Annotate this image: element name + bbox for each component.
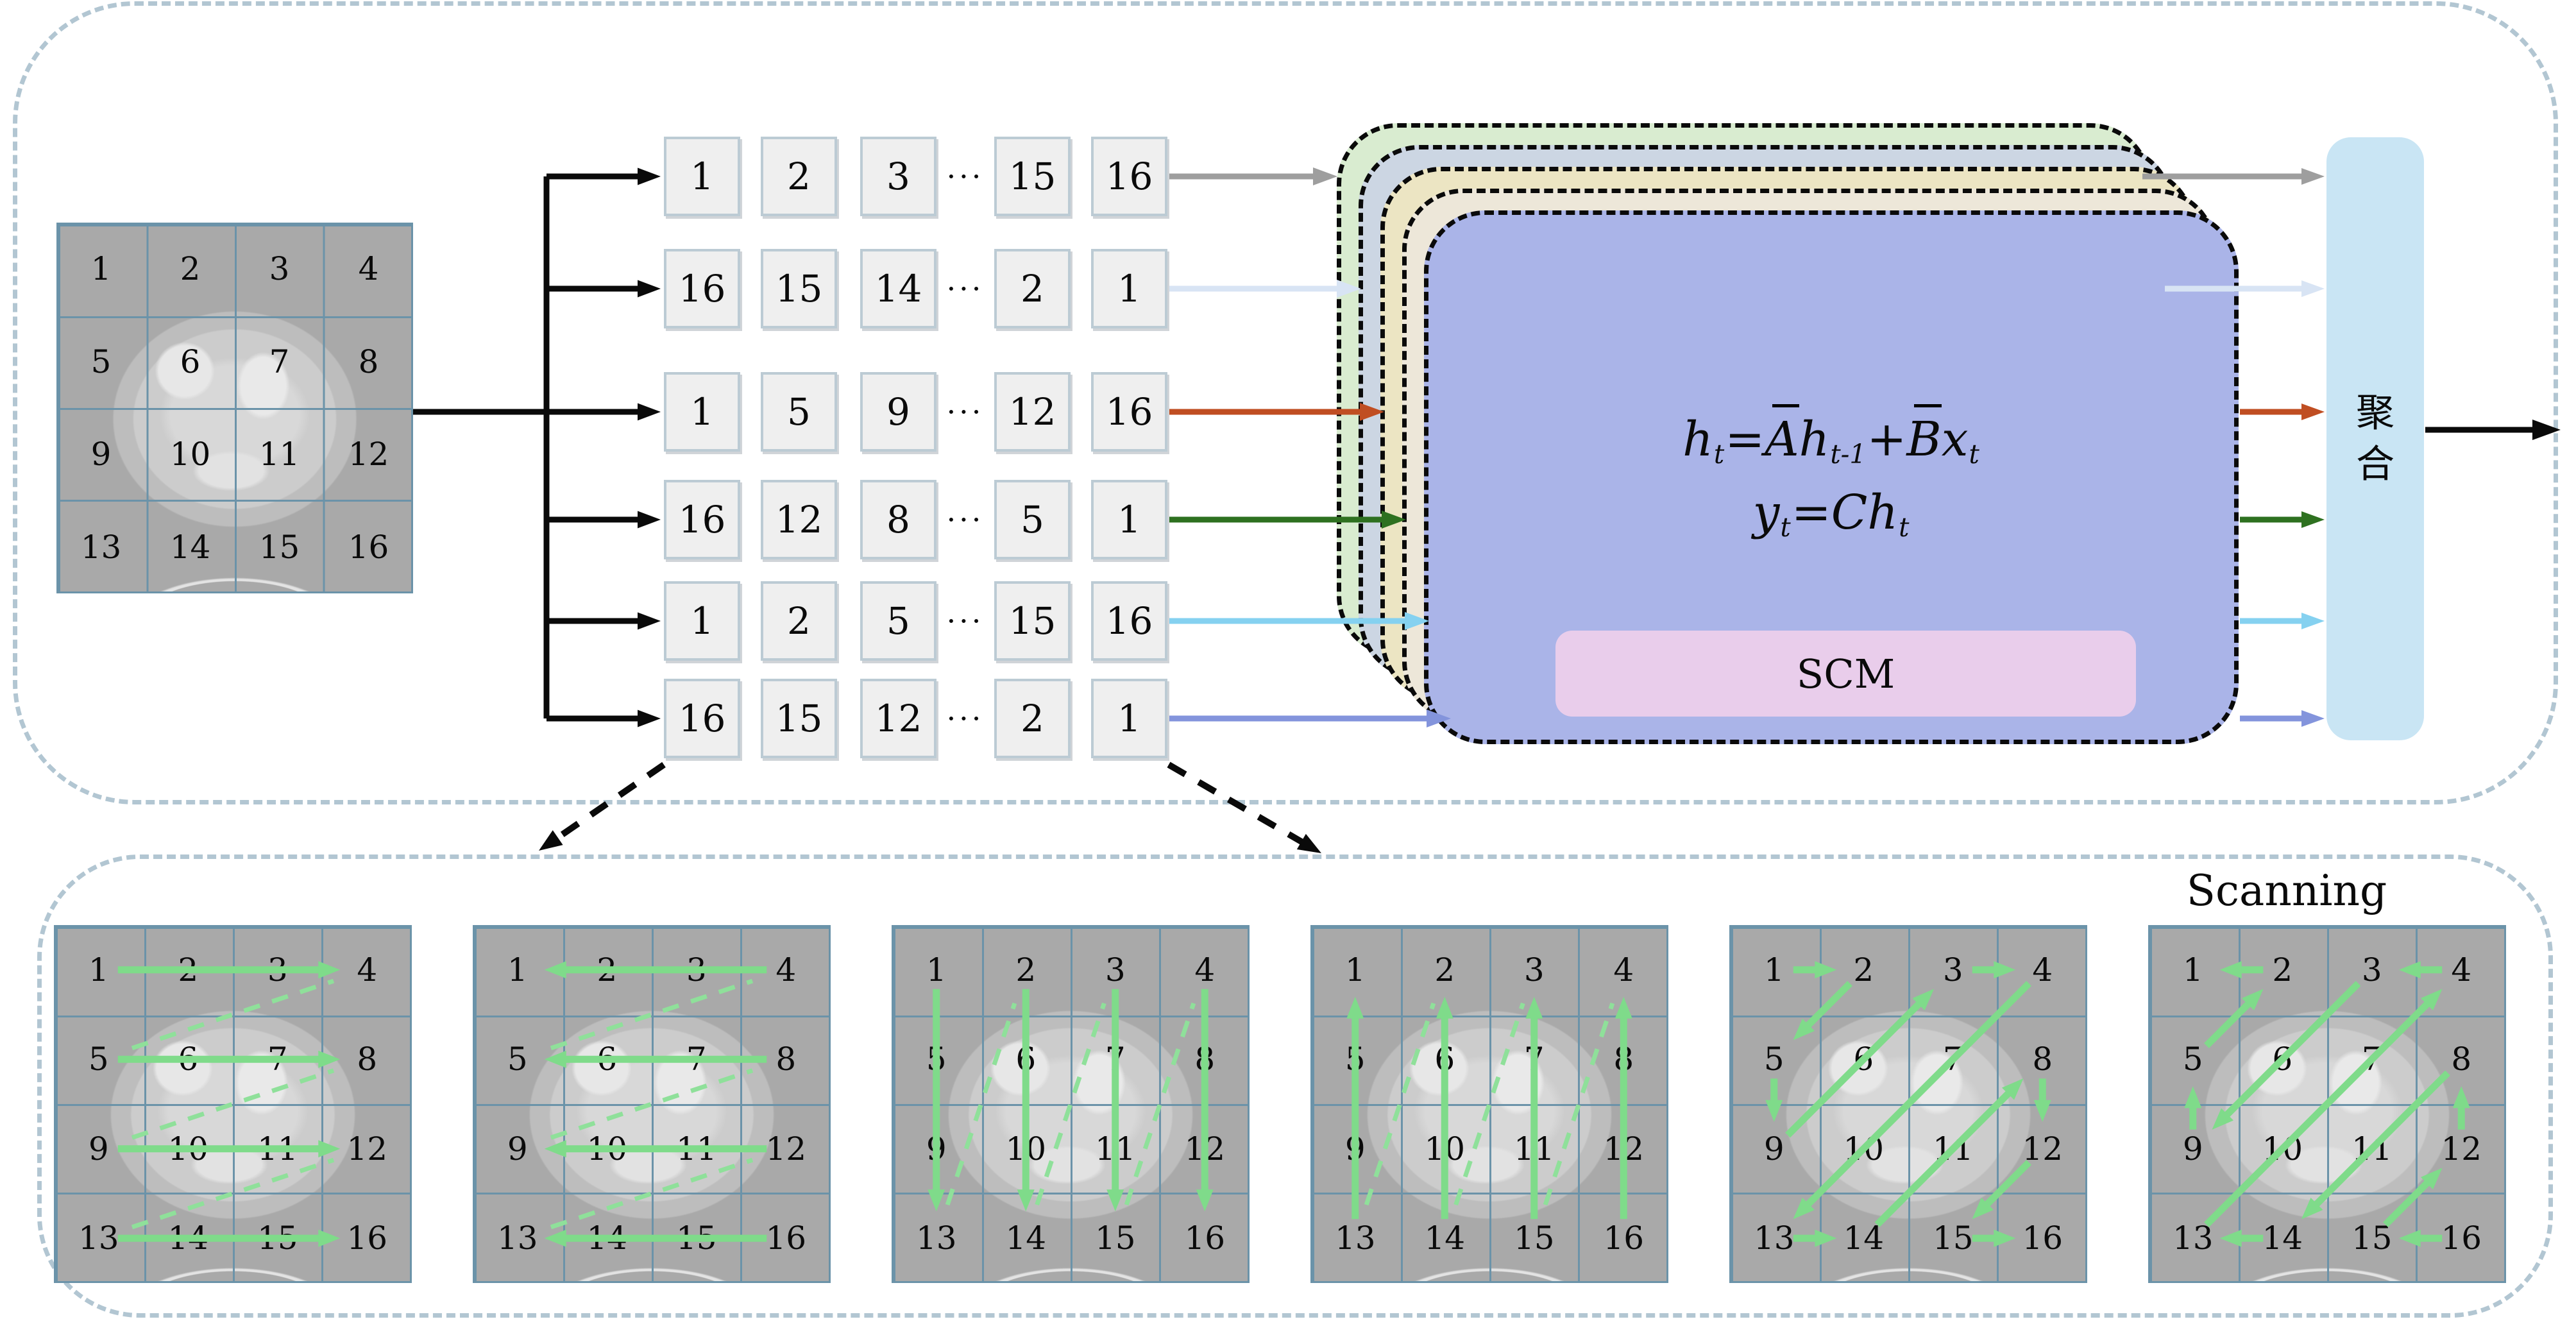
equation-token: = — [1725, 412, 1765, 467]
scanning-label: Scanning — [2136, 866, 2437, 915]
grid-cell-label: 6 — [1400, 1015, 1490, 1105]
sequence-dots: ··· — [944, 480, 987, 559]
grid-cell-label: 8 — [1160, 1015, 1250, 1105]
grid-cell-label: 2 — [563, 925, 652, 1015]
sequence-dots: ··· — [944, 249, 987, 328]
grid-cell-label: 16 — [1160, 1194, 1250, 1284]
grid-cell-label: 9 — [1310, 1104, 1400, 1194]
sequence-box: 1 — [664, 137, 740, 216]
grid-cell-label: 6 — [144, 1015, 233, 1105]
grid-cell-label: 6 — [146, 316, 235, 409]
sequence-box: 16 — [664, 679, 740, 758]
sequence-box: 2 — [761, 137, 837, 216]
grid-cell-label: 16 — [2417, 1194, 2507, 1284]
sequence-box: 1 — [1091, 249, 1167, 328]
grid-cell-label: 1 — [1310, 925, 1400, 1015]
grid-cell-label: 12 — [323, 1104, 412, 1194]
grid-cell-label: 14 — [144, 1194, 233, 1284]
scan-grid-6: 12345678910111213141516 — [2148, 925, 2506, 1283]
grid-cell-label: 14 — [981, 1194, 1071, 1284]
grid-cell-label: 16 — [324, 501, 413, 594]
sequence-box: 15 — [994, 581, 1071, 661]
sequence-box: 2 — [994, 249, 1071, 328]
scan-grid-4: 12345678910111213141516 — [1310, 925, 1668, 1283]
grid-cell-label: 3 — [235, 223, 324, 316]
equation-token: t — [1714, 439, 1724, 470]
grid-cell-label: 4 — [1998, 925, 2088, 1015]
grid-cell-label: 4 — [1160, 925, 1250, 1015]
equation-token: A — [1765, 403, 1799, 476]
ct-cell-numbers: 12345678910111213141516 — [54, 925, 412, 1283]
grid-cell-label: 16 — [1579, 1194, 1669, 1284]
diagram-stage: ht=Aht-1+Bxt yt=Cht SCM 聚合 1234567891011… — [0, 0, 2576, 1326]
grid-cell-label: 14 — [2238, 1194, 2328, 1284]
sequence-box: 12 — [994, 372, 1071, 452]
sequence-box: 5 — [761, 372, 837, 452]
arrow-head — [539, 830, 563, 851]
sequence-box: 16 — [1091, 137, 1167, 216]
grid-cell-label: 6 — [563, 1015, 652, 1105]
grid-cell-label: 12 — [741, 1104, 831, 1194]
grid-cell-label: 15 — [1489, 1194, 1579, 1284]
grid-cell-label: 14 — [1819, 1194, 1909, 1284]
grid-cell-label: 10 — [1400, 1104, 1490, 1194]
grid-cell-label: 12 — [1160, 1104, 1250, 1194]
scan-grid-2: 12345678910111213141516 — [473, 925, 831, 1283]
sequence-box: 15 — [761, 679, 837, 758]
grid-cell-label: 5 — [892, 1015, 981, 1105]
grid-cell-label: 2 — [2238, 925, 2328, 1015]
sequence-box: 1 — [1091, 679, 1167, 758]
sequence-box: 3 — [860, 137, 936, 216]
sequence-box: 1 — [664, 372, 740, 452]
equation-line-2: yt=Cht — [1495, 476, 2168, 549]
grid-cell-label: 16 — [741, 1194, 831, 1284]
scan-grid-3: 12345678910111213141516 — [892, 925, 1250, 1283]
scan-grid-1: 12345678910111213141516 — [54, 925, 412, 1283]
equation-token: t — [1969, 439, 1979, 470]
sequence-dots: ··· — [944, 372, 987, 452]
grid-cell-label: 9 — [54, 1104, 144, 1194]
grid-cell-label: 12 — [2417, 1104, 2507, 1194]
sequence-box: 12 — [860, 679, 936, 758]
grid-cell-label: 11 — [233, 1104, 323, 1194]
scan-grid-5: 12345678910111213141516 — [1729, 925, 2087, 1283]
grid-cell-label: 1 — [892, 925, 981, 1015]
grid-cell-label: 1 — [2148, 925, 2238, 1015]
equation-token: = — [1792, 485, 1831, 540]
grid-cell-label: 11 — [1908, 1104, 1998, 1194]
equation-token: t — [1899, 512, 1909, 543]
grid-cell-label: 10 — [144, 1104, 233, 1194]
grid-cell-label: 15 — [2327, 1194, 2417, 1284]
equation-token: x — [1942, 412, 1969, 467]
arrow-head — [1297, 834, 1321, 853]
grid-cell-label: 7 — [1908, 1015, 1998, 1105]
grid-cell-label: 2 — [144, 925, 233, 1015]
grid-cell-label: 8 — [2417, 1015, 2507, 1105]
grid-cell-label: 13 — [54, 1194, 144, 1284]
grid-cell-label: 2 — [146, 223, 235, 316]
scm-label: SCM — [1797, 650, 1895, 697]
grid-cell-label: 8 — [1579, 1015, 1669, 1105]
sequence-box: 2 — [761, 581, 837, 661]
grid-cell-label: 2 — [981, 925, 1071, 1015]
sequence-box: 2 — [994, 679, 1071, 758]
grid-cell-label: 1 — [56, 223, 146, 316]
grid-cell-label: 7 — [652, 1015, 741, 1105]
sequence-box: 15 — [761, 249, 837, 328]
equation-token: h — [1682, 412, 1713, 467]
sequence-box: 16 — [1091, 372, 1167, 452]
grid-cell-label: 3 — [1071, 925, 1160, 1015]
grid-cell-label: 14 — [1400, 1194, 1490, 1284]
grid-cell-label: 10 — [2238, 1104, 2328, 1194]
grid-cell-label: 9 — [2148, 1104, 2238, 1194]
grid-cell-label: 14 — [563, 1194, 652, 1284]
sequence-box: 15 — [994, 137, 1071, 216]
grid-cell-label: 4 — [324, 223, 413, 316]
grid-cell-label: 13 — [2148, 1194, 2238, 1284]
grid-cell-label: 3 — [1489, 925, 1579, 1015]
grid-cell-label: 5 — [1310, 1015, 1400, 1105]
sequence-dots: ··· — [944, 581, 987, 661]
sequence-box: 1 — [664, 581, 740, 661]
sequence-box: 16 — [1091, 581, 1167, 661]
grid-cell-label: 13 — [1310, 1194, 1400, 1284]
sequence-dots: ··· — [944, 137, 987, 216]
grid-cell-label: 7 — [1489, 1015, 1579, 1105]
sequence-box: 16 — [664, 480, 740, 559]
sequence-box: 8 — [860, 480, 936, 559]
equation-line-1: ht=Aht-1+Bxt — [1495, 403, 2168, 476]
grid-cell-label: 6 — [1819, 1015, 1909, 1105]
equation-token: B — [1906, 403, 1941, 476]
equation-token: h — [1799, 412, 1830, 467]
grid-cell-label: 16 — [1998, 1194, 2088, 1284]
grid-cell-label: 11 — [1071, 1104, 1160, 1194]
grid-cell-label: 5 — [56, 316, 146, 409]
grid-cell-label: 4 — [1579, 925, 1669, 1015]
sequence-box: 14 — [860, 249, 936, 328]
grid-cell-label: 5 — [2148, 1015, 2238, 1105]
sequence-box: 16 — [664, 249, 740, 328]
grid-cell-label: 9 — [473, 1104, 563, 1194]
aggregate-label-char: 合 — [2356, 439, 2394, 490]
grid-cell-label: 10 — [563, 1104, 652, 1194]
ct-cell-numbers: 12345678910111213141516 — [473, 925, 831, 1283]
grid-cell-label: 13 — [1729, 1194, 1819, 1284]
grid-cell-label: 9 — [892, 1104, 981, 1194]
grid-cell-label: 1 — [54, 925, 144, 1015]
grid-cell-label: 12 — [324, 408, 413, 501]
equation-token: h — [1867, 485, 1898, 540]
grid-cell-label: 15 — [235, 501, 324, 594]
equation-token: t — [1780, 512, 1790, 543]
grid-cell-label: 7 — [1071, 1015, 1160, 1105]
grid-cell-label: 8 — [324, 316, 413, 409]
ct-cell-numbers: 12345678910111213141516 — [1729, 925, 2087, 1283]
grid-cell-label: 13 — [892, 1194, 981, 1284]
grid-cell-label: 2 — [1819, 925, 1909, 1015]
grid-cell-label: 4 — [323, 925, 412, 1015]
sequence-box: 9 — [860, 372, 936, 452]
grid-cell-label: 8 — [323, 1015, 412, 1105]
grid-cell-label: 13 — [473, 1194, 563, 1284]
aggregate-label-char: 聚 — [2356, 387, 2394, 439]
ct-cell-numbers: 12345678910111213141516 — [892, 925, 1250, 1283]
grid-cell-label: 3 — [1908, 925, 1998, 1015]
grid-cell-label: 15 — [1908, 1194, 1998, 1284]
grid-cell-label: 11 — [2327, 1104, 2417, 1194]
grid-cell-label: 15 — [1071, 1194, 1160, 1284]
grid-cell-label: 7 — [235, 316, 324, 409]
grid-cell-label: 3 — [233, 925, 323, 1015]
grid-cell-label: 5 — [54, 1015, 144, 1105]
grid-cell-label: 5 — [1729, 1015, 1819, 1105]
grid-cell-label: 10 — [1819, 1104, 1909, 1194]
grid-cell-label: 16 — [323, 1194, 412, 1284]
equation-token: t-1 — [1830, 439, 1866, 470]
sequence-dots: ··· — [944, 679, 987, 758]
aggregate-box: 聚合 — [2326, 137, 2424, 740]
sequence-box: 5 — [860, 581, 936, 661]
equation-token: + — [1867, 412, 1906, 467]
grid-cell-label: 2 — [1400, 925, 1490, 1015]
grid-cell-label: 5 — [473, 1015, 563, 1105]
equation-token: C — [1831, 485, 1868, 540]
grid-cell-label: 15 — [233, 1194, 323, 1284]
source-image-grid: 12345678910111213141516 — [56, 223, 413, 593]
grid-cell-label: 7 — [233, 1015, 323, 1105]
grid-cell-label: 1 — [473, 925, 563, 1015]
equation-token: y — [1753, 485, 1780, 540]
grid-cell-label: 12 — [1998, 1104, 2088, 1194]
grid-cell-label: 7 — [2327, 1015, 2417, 1105]
scm-box: SCM — [1555, 631, 2136, 717]
grid-cell-label: 1 — [1729, 925, 1819, 1015]
grid-cell-label: 10 — [981, 1104, 1071, 1194]
grid-cell-label: 15 — [652, 1194, 741, 1284]
sequence-box: 12 — [761, 480, 837, 559]
grid-cell-label: 3 — [652, 925, 741, 1015]
grid-cell-label: 11 — [235, 408, 324, 501]
ct-cell-numbers: 12345678910111213141516 — [56, 223, 413, 593]
grid-cell-label: 9 — [1729, 1104, 1819, 1194]
grid-cell-label: 10 — [146, 408, 235, 501]
grid-cell-label: 13 — [56, 501, 146, 594]
grid-cell-label: 9 — [56, 408, 146, 501]
sequence-box: 5 — [994, 480, 1071, 559]
grid-cell-label: 6 — [981, 1015, 1071, 1105]
ct-cell-numbers: 12345678910111213141516 — [2148, 925, 2506, 1283]
grid-cell-label: 11 — [1489, 1104, 1579, 1194]
grid-cell-label: 11 — [652, 1104, 741, 1194]
grid-cell-label: 14 — [146, 501, 235, 594]
grid-cell-label: 4 — [741, 925, 831, 1015]
grid-cell-label: 8 — [1998, 1015, 2088, 1105]
sequence-box: 1 — [1091, 480, 1167, 559]
grid-cell-label: 8 — [741, 1015, 831, 1105]
grid-cell-label: 6 — [2238, 1015, 2328, 1105]
ssm-equations: ht=Aht-1+Bxt yt=Cht — [1495, 403, 2168, 549]
grid-cell-label: 3 — [2327, 925, 2417, 1015]
grid-cell-label: 12 — [1579, 1104, 1669, 1194]
ct-cell-numbers: 12345678910111213141516 — [1310, 925, 1668, 1283]
grid-cell-label: 4 — [2417, 925, 2507, 1015]
